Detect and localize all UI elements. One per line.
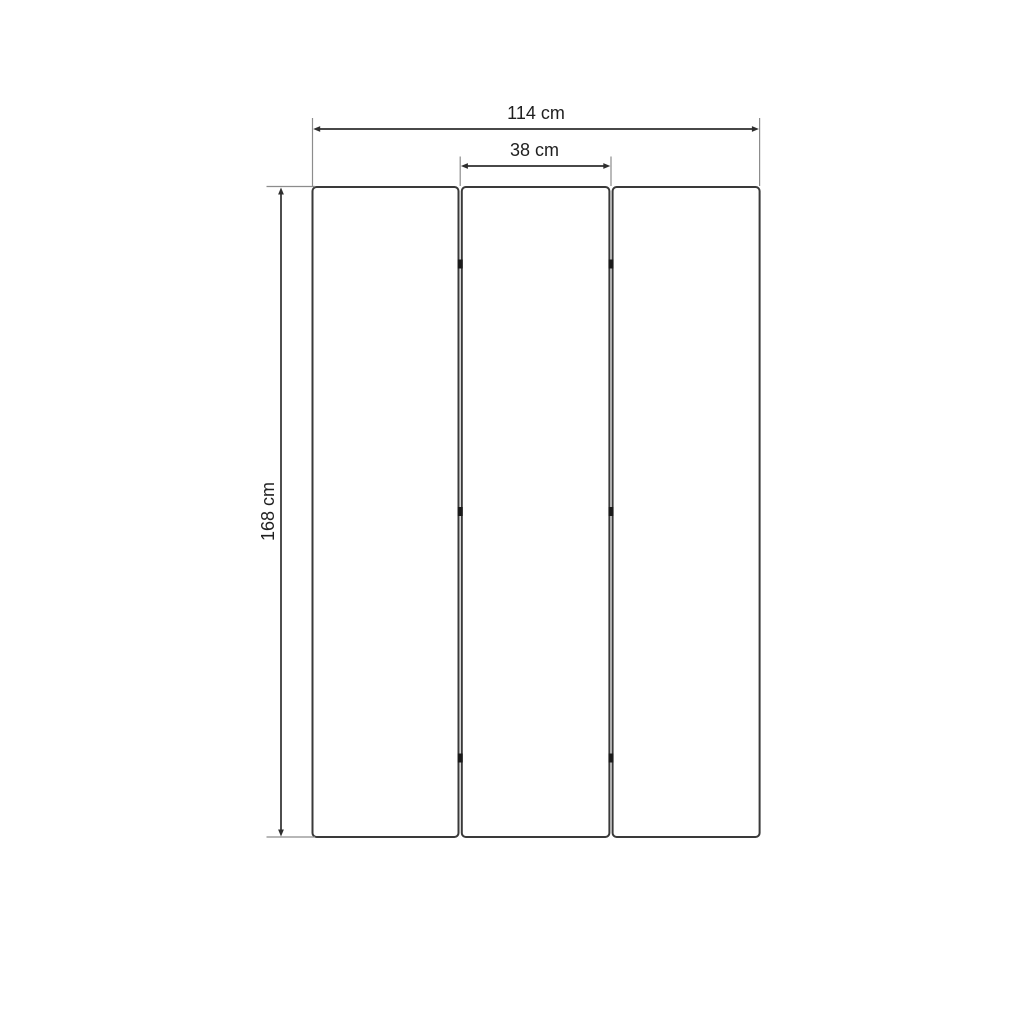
svg-text:38 cm: 38 cm [510, 140, 559, 160]
svg-text:114 cm: 114 cm [507, 103, 565, 123]
svg-text:168 cm: 168 cm [258, 482, 278, 541]
